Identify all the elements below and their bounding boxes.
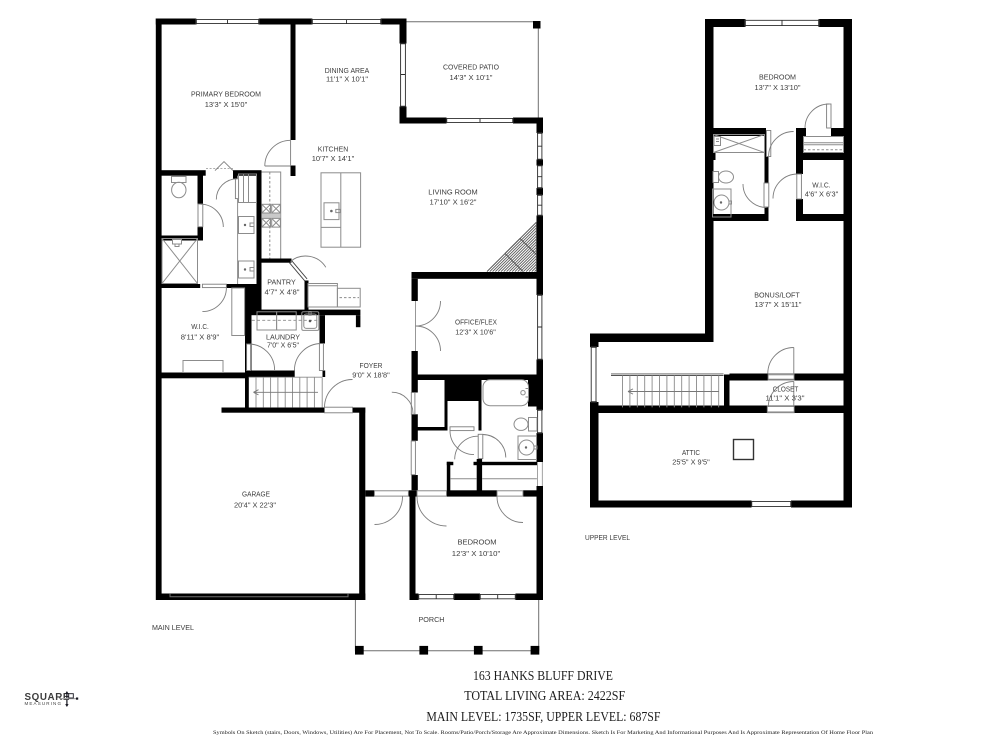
svg-text:7'0" X 6'5": 7'0" X 6'5" (267, 343, 300, 350)
svg-text:MEASURING: MEASURING (25, 701, 63, 706)
svg-text:LAUNDRY: LAUNDRY (266, 333, 300, 342)
svg-text:12'3" X 10'10": 12'3" X 10'10" (452, 551, 501, 558)
svg-text:9'0" X 18'8": 9'0" X 18'8" (352, 373, 390, 380)
svg-text:CLOSET: CLOSET (773, 385, 799, 394)
svg-text:PRIMARY BEDROOM: PRIMARY BEDROOM (191, 89, 261, 98)
svg-text:DINING AREA: DINING AREA (325, 66, 370, 75)
svg-text:GARAGE: GARAGE (242, 490, 270, 499)
svg-text:163 HANKS BLUFF DRIVE: 163 HANKS BLUFF DRIVE (473, 669, 613, 684)
svg-text:11'1" X 3'3": 11'1" X 3'3" (766, 396, 806, 403)
svg-text:TOTAL LIVING AREA: 2422SF: TOTAL LIVING AREA: 2422SF (464, 689, 625, 704)
svg-text:BONUS/LOFT: BONUS/LOFT (754, 291, 800, 300)
svg-text:MAIN LEVEL: 1735SF, UPPER LEVE: MAIN LEVEL: 1735SF, UPPER LEVEL: 687SF (426, 710, 660, 725)
svg-text:4'7" X 4'8": 4'7" X 4'8" (265, 290, 301, 297)
svg-text:BEDROOM: BEDROOM (759, 73, 796, 82)
svg-text:W.I.C.: W.I.C. (812, 181, 830, 190)
svg-text:COVERED PATIO: COVERED PATIO (443, 63, 499, 72)
svg-text:4'6" X 6'3": 4'6" X 6'3" (805, 192, 839, 199)
svg-text:LIVING ROOM: LIVING ROOM (428, 188, 478, 197)
svg-text:14'3" X 10'1": 14'3" X 10'1" (450, 75, 494, 82)
svg-text:17'10" X 16'2": 17'10" X 16'2" (430, 200, 478, 207)
svg-text:13'7" X 13'10": 13'7" X 13'10" (755, 85, 802, 92)
svg-text:12'3" X 10'6": 12'3" X 10'6" (455, 330, 496, 337)
svg-text:PANTRY: PANTRY (267, 278, 296, 287)
svg-text:ATTIC: ATTIC (682, 448, 700, 457)
svg-text:PORCH: PORCH (419, 615, 445, 624)
svg-text:BEDROOM: BEDROOM (458, 538, 497, 547)
svg-text:20'4" X 22'3": 20'4" X 22'3" (234, 503, 277, 510)
svg-text:25'5" X 9'5": 25'5" X 9'5" (672, 460, 710, 467)
svg-text:Symbols On Sketch (stairs, Doo: Symbols On Sketch (stairs, Doors, Window… (213, 729, 873, 736)
svg-text:10'7" X 14'1": 10'7" X 14'1" (312, 156, 355, 163)
svg-text:MAIN LEVEL: MAIN LEVEL (152, 623, 194, 632)
svg-text:8'11" X 8'9": 8'11" X 8'9" (181, 335, 220, 342)
svg-text:W.I.C.: W.I.C. (191, 322, 209, 331)
svg-text:KITCHEN: KITCHEN (318, 145, 349, 154)
svg-text:OFFICE/FLEX: OFFICE/FLEX (455, 318, 497, 327)
svg-text:13'7" X 15'11": 13'7" X 15'11" (755, 302, 803, 309)
svg-text:FOYER: FOYER (360, 361, 383, 370)
svg-text:UPPER LEVEL: UPPER LEVEL (585, 533, 630, 542)
svg-text:13'3" X 15'0": 13'3" X 15'0" (205, 102, 248, 109)
svg-text:11'1" X 10'1": 11'1" X 10'1" (326, 77, 369, 84)
